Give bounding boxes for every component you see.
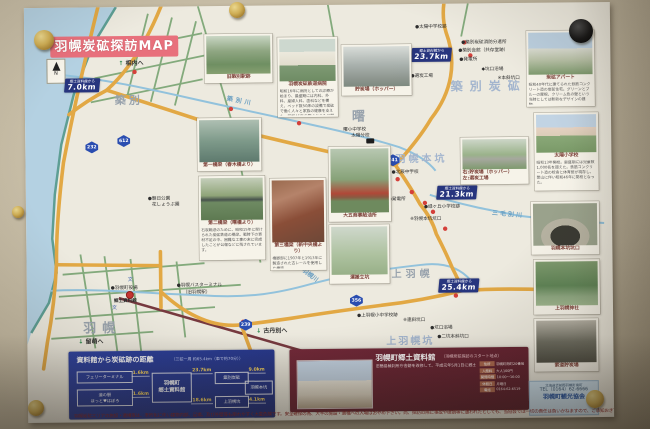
photo-railway-hospital — [279, 39, 335, 82]
photo-transport-shaft — [331, 226, 387, 275]
poi-pithead-bath-2: ●坑口浴場 — [430, 325, 452, 331]
museum-info-table: 住所羽幌町南町20番地 入館料大人100円 開館時間10:00〜16:00 休館… — [480, 361, 524, 394]
compass-north-label: N — [54, 71, 58, 77]
area-haboro-honko: 羽幌本坑 — [395, 150, 447, 166]
distance-diagram-box: 資料館から炭砿跡の距離 （三砿一周 約65.4km（車で約70分）） フェリータ… — [68, 349, 275, 419]
photo-cableway-coal-storage — [536, 320, 596, 363]
photo-third-bridge — [272, 180, 325, 243]
distance-box-subtitle: （三砿一周 約65.4km（車で約70分）） — [172, 356, 244, 363]
down-arrow-icon: ↓ — [78, 338, 83, 345]
photo-card-sakudo: 索道貯炭場 — [534, 318, 599, 372]
poi-pithead-bath-1: ◆坑口浴場 — [481, 66, 503, 72]
poi-power-plant-1: ●発電所 — [459, 56, 477, 62]
area-haboro: 羽幌 — [83, 317, 121, 336]
poi-town-hall: ●羽幌町役場 — [111, 285, 138, 291]
photo-card-taiyo-es: 太陽小学校 昭和13年開校。最盛期には児童数1,000名を超えた。鉄筋コンクリー… — [534, 112, 599, 191]
photo-museum-building — [297, 359, 374, 409]
photo-coal-hopper — [343, 46, 409, 87]
poi-coal-plant: ●選炭工場 — [411, 73, 433, 79]
photo-card-hospital: 羽幌炭砿鉄道病院 昭和16年に病院としての診療が始まり、最盛期には内科、外科、産… — [277, 37, 338, 118]
distance-ferry: 1.6km — [132, 371, 150, 377]
poi-fire-station: ●築別炭砿消防分遣所 — [461, 39, 506, 45]
area-chikubetsu: 築別 — [115, 92, 143, 108]
gold-pin-bottom-right — [586, 390, 604, 408]
poi-bus-terminal-1: ●羽幌バスターミナル — [177, 282, 222, 288]
area-akebono: 曙 — [352, 106, 365, 125]
node-michinoeki: 道の駅ほっと♥はぼろ — [77, 389, 133, 407]
distance-box-title: 資料館から炭砿跡の距離 — [76, 355, 153, 366]
distance-badge-21km: 郷土資料館から21.3km — [436, 185, 478, 199]
up-arrow-icon: ↑ — [118, 60, 123, 67]
museum-box-title: 羽幌町郷土資料館 — [375, 352, 435, 364]
black-magnet-top-right — [569, 19, 593, 43]
photo-card-bridge2: 第二橋梁（曙橋より） 石炭輸送のために、昭和15年に架けられた炭砿鉄道の橋梁。戦… — [199, 176, 266, 261]
photo-card-shaft: 運搬立坑 — [329, 224, 390, 284]
area-kamihaboro-ko: 上羽幌坑 — [386, 332, 434, 348]
poi-no2-incline: ●二坑本斜坑口 — [437, 333, 469, 339]
museum-info-box: 羽幌町郷土資料館 （羽幌炭砿探訪のスタート地点） 旧簡易裁判所庁舎跡を改修して、… — [289, 347, 529, 412]
node-ferry-terminal: フェリーターミナル — [77, 371, 133, 384]
photo-second-bridge — [201, 178, 263, 221]
distance-badge-23km: 郷土資料館から23.7km — [411, 48, 453, 62]
photo-card-honko-portal: 羽幌本坑坑口 — [531, 201, 600, 255]
poi-main-incline: ※本斜坑口 — [498, 75, 520, 81]
node-kamihaboro-ko: 上羽幌坑 — [215, 396, 249, 408]
building-icon — [366, 138, 374, 143]
poi-museum: 郷土資料館 — [114, 298, 137, 304]
photo-card-shrine: 上羽幌神社 — [534, 259, 601, 315]
photo-card-hopper-plant: 右:貯炭場（ホッパー） 左:選炭工場 — [460, 137, 528, 185]
gold-pin-top-left — [34, 30, 54, 50]
photo-gas-station — [330, 148, 389, 213]
school-mark-icon: 文 — [112, 304, 117, 311]
poi-taiyo-jhs-site: ●太陽中学校跡 — [415, 24, 447, 30]
poi-hokushin-jhs: ●北辰中学校 — [392, 169, 419, 175]
photo-former-chikubetsu-station — [206, 36, 270, 75]
photo-hopper-and-plant — [462, 139, 526, 170]
direction-kotanbetsu: ↓ 古丹別へ — [256, 325, 287, 334]
haboro-coalmine-map-poster: 羽幌炭砿探訪MAP N ↑ 相内へ ↓ 古丹別へ ↓ 留萌へ 築別 曙 羽幌 上… — [24, 2, 614, 423]
info-row-fee: 入館料大人100円 — [480, 367, 524, 372]
down-arrow-icon: ↓ — [256, 328, 261, 335]
info-row-closed: 休館日月曜日 — [480, 380, 524, 385]
poi-kamihaboro-school: ●上羽幌小中学校跡 — [357, 312, 398, 318]
gold-pin-bottom-left — [28, 400, 44, 416]
poi-bus-terminal-2: （旧羽幌駅） — [183, 289, 211, 295]
gold-pin-top-center — [229, 2, 245, 18]
area-kamihaboro: 上羽幌 — [392, 265, 434, 280]
info-row-address: 住所羽幌町南町20番地 — [480, 361, 524, 366]
photo-kamihaboro-shrine — [536, 261, 598, 306]
poi-incline-portal: ※連斜坑口 — [403, 317, 425, 323]
direction-aiuchi: ↑ 相内へ — [118, 58, 143, 67]
poi-asahi-park-2: 花しょうぶ園 — [152, 201, 180, 207]
distance-badge-7km: 郷土資料館から7.0km — [64, 78, 100, 92]
photo-card-former-station: 旧築別駅跡 — [204, 33, 273, 83]
compass-needle — [52, 62, 60, 71]
info-row-hours: 開館時間10:00〜16:00 — [480, 374, 524, 379]
photo-of-poster: 羽幌炭砿探訪MAP N ↑ 相内へ ↓ 古丹別へ ↓ 留萌へ 築別 曙 羽幌 上… — [0, 0, 650, 429]
distance-chikubetsu: 23.7km — [191, 368, 213, 374]
distance-kamihaboro: 18.6km — [191, 398, 213, 404]
photo-card-bridge1: 第一橋梁（春木橋より） — [197, 118, 262, 172]
museum-box-subtitle: （羽幌炭砿探訪のスタート地点） — [441, 353, 501, 360]
distance-michinoeki: 1.6km — [132, 392, 150, 398]
direction-rumoi: ↓ 留萌へ — [78, 336, 103, 345]
school-mark-icon: 文 — [128, 276, 133, 283]
distance-badge-25km: 郷土資料館から25.4km — [438, 278, 480, 292]
poi-honko-portal: ※羽幌本坑坑口 — [410, 216, 441, 222]
distance-honko-top: 9.0km — [248, 368, 266, 374]
poi-midorigaoka-es: ●緑ヶ丘小学校跡 — [424, 204, 460, 210]
map-title: 羽幌炭砿探訪MAP — [50, 35, 178, 57]
museum-description: 旧簡易裁判所庁舎跡を改修して、平成元年5月1日に郷土資料館として開館しました。炭… — [376, 362, 476, 407]
node-chikubetsu-tanko: 築別炭砿 — [215, 372, 249, 384]
distance-honko-bottom: 4.1km — [248, 398, 266, 404]
photo-card-hopper: 貯炭場（ホッパー） — [341, 44, 412, 96]
node-haboro-honko: 羽幌本坑 — [245, 380, 273, 394]
photo-card-bridge3: 第三橋梁（新中央橋より） 橋脚部に1907年と1913年に製造された古レールを使… — [270, 178, 327, 271]
gold-pin-left-wall — [12, 206, 24, 218]
photo-taiyo-elementary — [536, 114, 596, 153]
museum-start-dot — [126, 291, 134, 299]
info-row-phone: 電話0164-62-6519 — [480, 387, 524, 392]
photo-first-bridge — [199, 120, 259, 163]
photo-main-mine-portal — [533, 203, 597, 246]
map-sheet: 羽幌炭砿探訪MAP N ↑ 相内へ ↓ 古丹別へ ↓ 留萌へ 築別 曙 羽幌 上… — [24, 2, 614, 423]
photo-card-gas-station: 大五商事給油所 — [328, 146, 391, 222]
compass-icon: N — [46, 59, 65, 84]
node-museum: 羽幌町郷土資料館 — [152, 372, 192, 402]
poi-kaikan: ●築別会館（共存堂跡） — [458, 47, 508, 54]
